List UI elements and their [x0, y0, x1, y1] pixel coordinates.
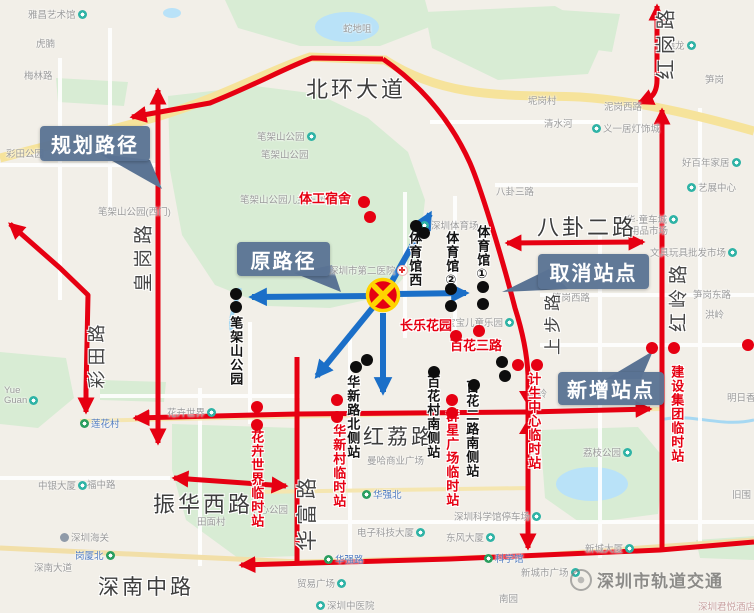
pin-icon: [60, 533, 69, 542]
station-label-temp: 花卉世界临时站: [249, 430, 263, 528]
poi-icon: [732, 158, 741, 167]
map-poi-label: 花卉世界: [167, 405, 216, 419]
poi-icon: [505, 318, 514, 327]
cancelled-stop-dot: [477, 281, 489, 293]
station-label-cancelled: 体育馆②: [444, 231, 458, 289]
map-poi-label: 清水河: [544, 116, 573, 130]
new-stop-dot: [251, 419, 263, 431]
map-poi-label: 虎腩: [36, 36, 55, 50]
poi-text: 华强路: [335, 552, 364, 566]
poi-text: 蛇地咀: [343, 21, 372, 35]
map-poi-label: 明日香: [727, 390, 754, 404]
callout-planned-route: 规划路径: [40, 126, 150, 161]
map-poi-label: 贸易广场: [297, 576, 346, 590]
map-poi-label: 电子科技大厦: [357, 525, 425, 539]
poi-icon: [207, 408, 216, 417]
road-label-vertical: 皇岗路: [129, 220, 156, 292]
new-stop-dot: [251, 401, 263, 413]
map-poi-label: 蛇地咀: [343, 21, 372, 35]
map-poi-label: 笋岗: [705, 72, 724, 86]
station-label-cancelled: 体育馆西: [407, 231, 421, 287]
new-stop-dot: [364, 211, 376, 223]
poi-text: 深圳市第二医院: [329, 263, 396, 277]
poi-icon: [623, 448, 632, 457]
poi-icon: [625, 544, 634, 553]
station-label-cancelled: 体育馆①: [475, 225, 489, 283]
metro-logo-icon: [570, 569, 592, 591]
map-poi-label: 南园: [499, 591, 518, 605]
poi-text: 华强北: [373, 487, 402, 501]
poi-icon: [728, 248, 737, 257]
station-label-temp: 群星广场临时站: [444, 409, 458, 507]
new-stop-dot: [446, 394, 458, 406]
road-label-vertical: 彩田路: [83, 320, 109, 389]
station-label-temp: 华新村临时站: [331, 424, 345, 508]
metro-icon: [106, 551, 115, 560]
poi-icon: [687, 183, 696, 192]
poi-icon: [592, 124, 601, 133]
poi-icon: [316, 601, 325, 610]
poi-text: 深圳体育场: [431, 218, 479, 232]
road-label-vertical: 华富路: [291, 473, 321, 551]
cancelled-stop-dot: [230, 288, 242, 300]
road-label: 北环大道: [306, 72, 406, 104]
map-poi-label: 义一居灯饰城: [592, 121, 660, 135]
poi-icon: [29, 396, 38, 405]
poi-text: 雅昌艺术馆: [28, 7, 76, 21]
road-label-vertical: 上步路: [539, 289, 564, 355]
map-poi-label: 深圳市第二医院: [329, 263, 407, 277]
map-poi-label: 八卦三路: [496, 184, 534, 198]
watermark: 深圳市轨道交通: [570, 567, 723, 592]
map-poi-label: 福中路: [87, 477, 116, 491]
poi-text: 虎腩: [36, 36, 55, 50]
transit-diversion-map: 雅昌艺术馆虎腩梅林路彩田公园蛇地咀笔架山公园笔架山公园笔架山公园(西门)笔架山公…: [0, 0, 754, 613]
poi-text: 梅林路: [24, 68, 53, 82]
cancelled-stop-dot: [350, 361, 362, 373]
poi-text: 笋岗东路: [693, 287, 731, 301]
poi-icon: [78, 481, 87, 490]
metro-icon: [324, 555, 333, 564]
callout-cancelled-stops: 取消站点: [538, 254, 649, 289]
map-poi-label: 泥岗西路: [604, 99, 642, 113]
poi-text: 泥岗西路: [604, 99, 642, 113]
station-label-cancelled: 百花村南侧站: [425, 375, 439, 459]
poi-icon: [687, 41, 696, 50]
metro-icon: [80, 419, 89, 428]
poi-text: 曼哈商业广场: [367, 453, 424, 467]
poi-text: 深圳科学馆停车场: [454, 509, 530, 523]
poi-text: 深圳中医院: [327, 598, 375, 612]
new-stop-dot: [531, 359, 543, 371]
cancelled-stop-dot: [428, 366, 440, 378]
map-poi-label: 科学馆: [484, 551, 524, 565]
map-poi-label: 荔枝公园: [583, 445, 632, 459]
poi-text: 中银大厦: [38, 478, 76, 492]
new-stop-dot: [742, 339, 754, 351]
map-poi-label: 曼哈商业广场: [367, 453, 424, 467]
map-poi-label: 深圳君悦酒店: [698, 599, 754, 613]
poi-text: 岗厦北: [75, 548, 104, 562]
map-labels-layer: 雅昌艺术馆虎腩梅林路彩田公园蛇地咀笔架山公园笔架山公园笔架山公园(西门)笔架山公…: [0, 0, 754, 613]
map-poi-label: 笋岗东路: [693, 287, 731, 301]
poi-text: 笔架山公园: [261, 147, 309, 161]
map-poi-label: 洪岭: [705, 307, 724, 321]
map-poi-label: 坭岗村: [528, 93, 557, 107]
callout-added-stops: 新增站点: [558, 372, 664, 405]
cancelled-stop-dot: [445, 300, 457, 312]
cancelled-stop-dot: [361, 354, 373, 366]
poi-icon: [307, 132, 316, 141]
cancelled-stop-dot: [477, 298, 489, 310]
new-stop-dot: [358, 196, 370, 208]
new-stop-dot: [331, 394, 343, 406]
new-stop-dot: [446, 407, 458, 419]
poi-text: 八卦三路: [496, 184, 534, 198]
new-stop-dot: [512, 359, 524, 371]
road-label-vertical: 红岭路: [664, 260, 691, 332]
station-label-temp: 长乐花园: [400, 319, 452, 333]
poi-icon: [669, 215, 678, 224]
poi-icon: [78, 10, 87, 19]
new-stop-dot: [331, 411, 343, 423]
poi-text: 明日香: [727, 390, 754, 404]
map-poi-label: 华强路: [324, 552, 364, 566]
map-poi-label: Guan: [4, 395, 38, 406]
poi-text: 东风大厦: [446, 530, 484, 544]
cancelled-stop-dot: [468, 379, 480, 391]
poi-icon: [416, 528, 425, 537]
map-poi-label: 雅昌艺术馆: [28, 7, 87, 21]
poi-text: 深圳海关: [71, 530, 109, 544]
map-poi-label: 莲花村: [80, 416, 120, 430]
poi-text: 旧围: [732, 487, 751, 501]
road-label: 八卦二路: [537, 210, 637, 242]
map-poi-label: 旧围: [732, 487, 751, 501]
map-poi-label: 东风大厦: [446, 530, 495, 544]
callout-original-route: 原路径: [237, 242, 330, 276]
map-poi-label: 中银大厦: [38, 478, 87, 492]
map-poi-label: 深圳中医院: [316, 598, 375, 612]
station-label-cancelled: 百花二路南侧站: [464, 380, 478, 478]
map-poi-label: 彩田公园: [6, 146, 44, 160]
map-poi-label: 文具玩具批发市场: [650, 245, 737, 259]
poi-text: Guan: [4, 395, 27, 406]
map-poi-label: 梅林路: [24, 68, 53, 82]
road-label: 深南中路: [98, 571, 194, 601]
poi-text: 莲花村: [91, 416, 120, 430]
poi-text: 义一居灯饰城: [603, 121, 660, 135]
poi-text: 花卉世界: [167, 405, 205, 419]
poi-text: 笔架山公园(西门): [98, 204, 171, 218]
map-poi-label: 笔架山公园: [257, 129, 316, 143]
station-label-cancelled: 华新路北侧站: [345, 375, 359, 459]
poi-text: 文具玩具批发市场: [650, 245, 726, 259]
poi-text: 电子科技大厦: [357, 525, 414, 539]
poi-text: 深南大道: [34, 560, 72, 574]
poi-text: 科学馆: [495, 551, 524, 565]
map-poi-label: 深南大道: [34, 560, 72, 574]
poi-text: 新城大厦: [585, 541, 623, 555]
cancelled-stop-dot: [445, 283, 457, 295]
poi-text: 荔枝公园: [583, 445, 621, 459]
poi-text: 洪岭: [705, 307, 724, 321]
map-poi-label: 笔架山公园: [261, 147, 309, 161]
poi-text: 艺展中心: [698, 180, 736, 194]
cancelled-stop-dot: [499, 370, 511, 382]
new-stop-dot: [668, 342, 680, 354]
cancelled-stop-dot: [496, 356, 508, 368]
map-poi-label: 新城大厦: [585, 541, 634, 555]
poi-text: 好百年家居: [682, 155, 730, 169]
poi-icon: [532, 512, 541, 521]
poi-text: 彩田公园: [6, 146, 44, 160]
map-poi-label: 艺展中心: [687, 180, 736, 194]
metro-icon: [362, 490, 371, 499]
new-stop-dot: [450, 330, 462, 342]
map-poi-label: 岗厦北: [75, 548, 115, 562]
hosp-icon: [398, 266, 407, 275]
poi-text: 南园: [499, 591, 518, 605]
map-poi-label: 华强北: [362, 487, 402, 501]
poi-text: 贸易广场: [297, 576, 335, 590]
road-label-vertical: 红岗路: [650, 5, 679, 80]
metro-icon: [484, 554, 493, 563]
road-label: 振华西路: [153, 487, 253, 519]
poi-icon: [337, 579, 346, 588]
poi-text: 福中路: [87, 477, 116, 491]
map-poi-label: 笔架山公园(西门): [98, 204, 171, 218]
station-label-temp: 体工宿舍: [299, 192, 351, 206]
map-poi-label: 深圳海关: [60, 530, 109, 544]
poi-text: 清水河: [544, 116, 573, 130]
poi-icon: [486, 533, 495, 542]
map-poi-label: 好百年家居: [682, 155, 741, 169]
cancelled-stop-dot: [418, 227, 430, 239]
cancelled-stop-dot: [230, 301, 242, 313]
poi-text: 坭岗村: [528, 93, 557, 107]
station-label-cancelled: 笔架山公园: [228, 316, 242, 386]
new-stop-dot: [473, 325, 485, 337]
station-label-temp: 计生中心临时站: [526, 372, 540, 470]
watermark-text: 深圳市轨道交通: [597, 567, 723, 592]
poi-text: 深圳君悦酒店: [698, 599, 754, 613]
new-stop-dot: [646, 342, 658, 354]
poi-text: 笋岗: [705, 72, 724, 86]
map-poi-label: 深圳科学馆停车场: [454, 509, 541, 523]
poi-text: 笔架山公园: [257, 129, 305, 143]
poi-text: 新城市广场: [521, 565, 569, 579]
station-label-temp: 建设集团临时站: [669, 365, 683, 463]
